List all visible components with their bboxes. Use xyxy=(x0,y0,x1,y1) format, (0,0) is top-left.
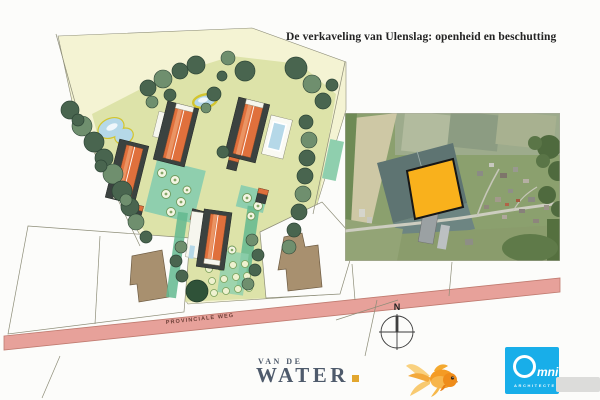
large-dark-tree xyxy=(186,280,208,302)
compass-north-label: N xyxy=(394,302,401,312)
van-de-water-wordmark: WATER xyxy=(256,367,349,384)
compass-needle xyxy=(396,316,399,333)
goldfish-logo xyxy=(404,352,464,398)
highlighted-parcel xyxy=(407,159,463,219)
omni-o-ring-icon xyxy=(513,355,536,378)
omni-logo: mni ARCHITECTEN xyxy=(505,347,559,394)
scanned-page: De verkaveling van Ulenslag: openheid en… xyxy=(0,0,600,400)
omni-wordmark: mni xyxy=(537,367,558,378)
van-de-water-logo: VAN DE WATER xyxy=(256,357,359,384)
omni-subtext: ARCHITECTEN xyxy=(514,383,559,388)
aerial-photo xyxy=(345,113,560,261)
scan-artifact-strip xyxy=(556,377,600,392)
orange-square-icon xyxy=(352,375,359,382)
